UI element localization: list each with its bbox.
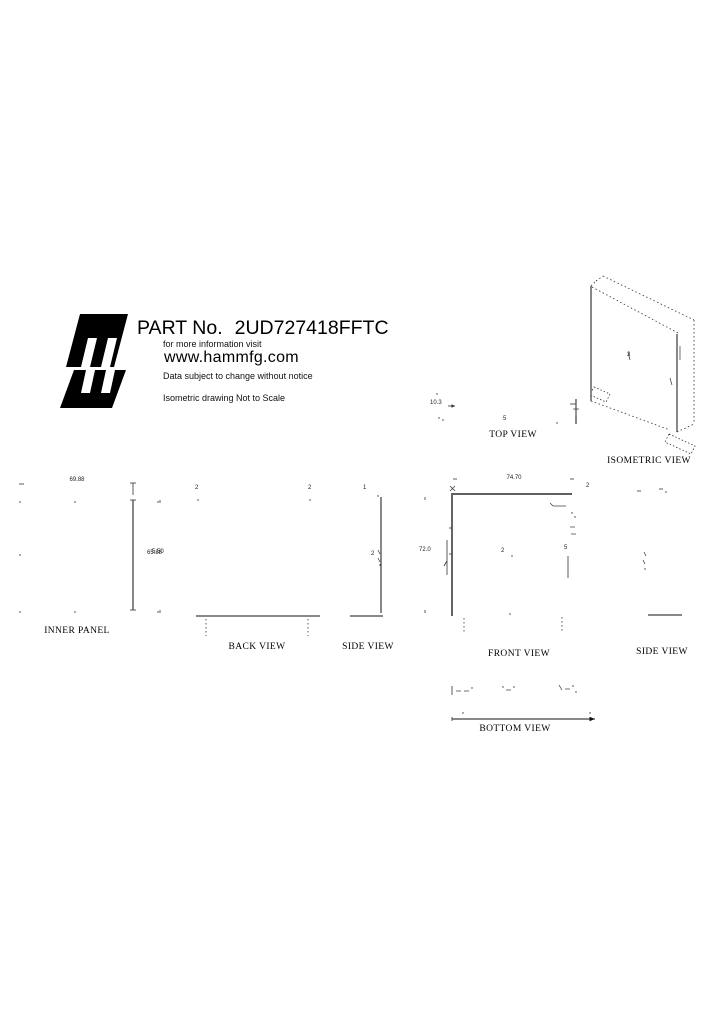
side-view-right-label: SIDE VIEW (636, 647, 688, 657)
isometric-view-drawing (573, 276, 695, 454)
front-view-center-callout: 2 (501, 548, 504, 554)
top-view-depth-dim: 10.3 (430, 400, 442, 406)
part-number-value: 2UD727418FFTC (235, 317, 389, 340)
side-view-left-callout-top: 1 (363, 485, 366, 491)
back-view-drawing (160, 499, 320, 636)
side-view-right-drawing (637, 489, 682, 615)
back-view-callout-right: 2 (308, 485, 311, 491)
front-view-corner-callout: 2 (586, 483, 589, 489)
front-view-height-dim: 72.0 (419, 547, 431, 553)
isometric-view-label: ISOMETRIC VIEW (607, 456, 691, 466)
front-view-width-dim: 74.70 (506, 475, 521, 481)
side-view-left-callout-mid: 2 (371, 551, 374, 557)
side-view-left-label: SIDE VIEW (342, 642, 394, 652)
website-url: www.hammfg.com (164, 349, 299, 367)
front-view-right-callout: 5 (564, 545, 567, 551)
info-line: for more information visit (163, 339, 262, 349)
front-height-dimension-line (444, 540, 447, 575)
side-view-left-drawing (350, 495, 425, 616)
drawing-linework (0, 0, 720, 1012)
drawing-sheet: PART No. 2UD727418FFTC for more informat… (0, 0, 720, 1012)
part-number-row: PART No. 2UD727418FFTC (137, 317, 389, 340)
back-view-side-dim: 5.50 (152, 549, 164, 555)
inner-panel-drawing (19, 483, 159, 613)
top-view-callout: 5 (503, 416, 506, 422)
isometric-callout: 3 (627, 352, 630, 358)
bottom-view-drawing (452, 685, 595, 721)
isometric-note: Isometric drawing Not to Scale (163, 393, 285, 403)
change-notice: Data subject to change without notice (163, 371, 313, 381)
part-number-label: PART No. (137, 317, 223, 340)
back-view-label: BACK VIEW (229, 642, 286, 652)
top-view-label: TOP VIEW (489, 430, 537, 440)
bottom-view-label: BOTTOM VIEW (479, 724, 550, 734)
inner-panel-width-dim: 69.88 (69, 477, 84, 483)
front-view-label: FRONT VIEW (488, 649, 550, 659)
hammond-logo (60, 314, 128, 408)
front-view-drawing (449, 479, 576, 633)
inner-panel-label: INNER PANEL (44, 626, 110, 636)
back-view-callout-left: 2 (195, 485, 198, 491)
